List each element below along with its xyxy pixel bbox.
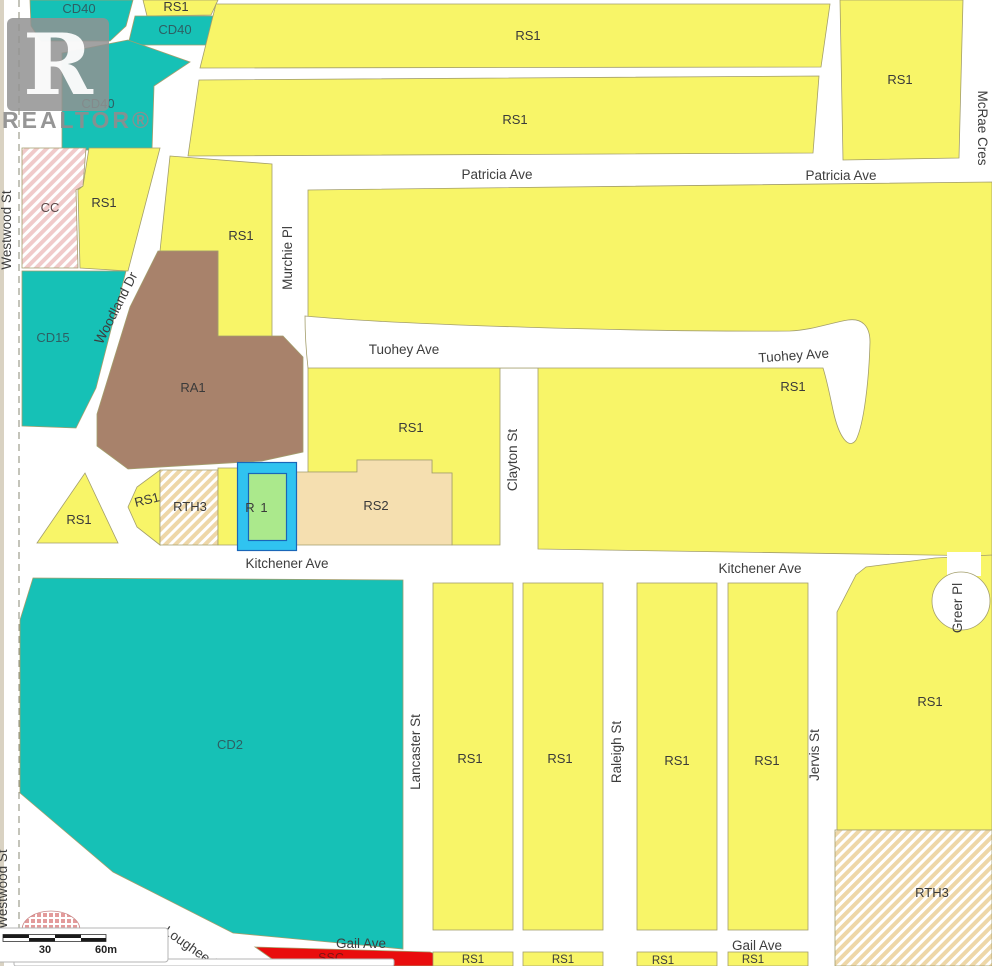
zone-label-cd15: CD15: [36, 330, 69, 345]
zone-label-rs1-stub3: RS1: [652, 955, 674, 966]
zoning-map-canvas: CD40 RS1 CD40 CD40 CC RS1 RS1 CD15 RA1 R…: [0, 0, 992, 966]
zone-label-rs1-col3: RS1: [664, 753, 689, 768]
zoning-map: CD40 RS1 CD40 CD40 CC RS1 RS1 CD15 RA1 R…: [0, 0, 992, 966]
street-label-lancaster-st: Lancaster St: [408, 714, 423, 790]
zone-label-rs1-mid: RS1: [398, 420, 423, 435]
street-label-kitchener-ave-w: Kitchener Ave: [245, 556, 328, 571]
zone-label-rs1-woodland: RS1: [228, 228, 253, 243]
street-label-patricia-ave-w: Patricia Ave: [461, 167, 532, 182]
scale-bar-seg: [29, 938, 55, 942]
zone-label-rth3-west: RTH3: [173, 499, 207, 514]
street-label-mcrae-cres: McRae Cres: [975, 90, 990, 165]
scale-bar-box: [0, 928, 168, 962]
zone-label-rs1-col4: RS1: [754, 753, 779, 768]
scale-bar-seg: [81, 938, 106, 942]
zone-label-rs1-stub4: RS1: [742, 954, 764, 966]
scale-bar: 30 60m: [0, 928, 168, 962]
zone-label-cd40-main: CD40: [81, 96, 114, 111]
scale-bar-max-label: 60m: [95, 944, 117, 956]
scale-bar-seg: [3, 935, 29, 939]
zone-label-rs1-strip1: RS1: [515, 28, 540, 43]
street-label-kitchener-ave-e: Kitchener Ave: [718, 561, 801, 576]
zone-label-cd2: CD2: [217, 737, 243, 752]
zone-label-rth3-southeast: RTH3: [915, 885, 949, 900]
street-label-jervis-st: Jervis St: [807, 729, 822, 781]
street-label-westwood-st-south: Westwood St: [0, 849, 10, 929]
zone-label-rs1-col2: RS1: [547, 751, 572, 766]
zone-label-rt1-1: 1: [260, 500, 267, 515]
zone-label-rs1-southeast: RS1: [917, 694, 942, 709]
zone-rs1-triangle: [37, 473, 118, 543]
zone-rs1-stub4: [728, 952, 808, 966]
zone-label-rs1-col1: RS1: [457, 751, 482, 766]
street-label-greer-pl: Greer Pl: [950, 583, 965, 633]
zone-label-cd40-north-small: CD40: [158, 22, 191, 37]
scale-bar-mid-label: 30: [39, 944, 51, 956]
zone-label-ra1: RA1: [180, 380, 205, 395]
street-label-patricia-ave-e: Patricia Ave: [805, 168, 876, 183]
zone-label-rs2: RS2: [363, 498, 388, 513]
street-label-clayton-st: Clayton St: [505, 429, 520, 492]
zone-label-rs1-stub1: RS1: [462, 954, 484, 966]
street-label-westwood-st: Westwood St: [0, 190, 14, 270]
zone-dome-hatched: [22, 911, 80, 930]
street-label-gail-ave-w: Gail Ave: [336, 936, 386, 951]
zone-label-cd40-north: CD40: [62, 1, 95, 16]
zone-rs1-west: [78, 148, 160, 271]
zone-label-rs1-east: RS1: [780, 379, 805, 394]
zone-label-cc: CC: [41, 200, 60, 215]
zone-label-rs1-northeast: RS1: [887, 72, 912, 87]
zone-label-rs1-strip2: RS1: [502, 112, 527, 127]
zone-label-rt1-r: R: [245, 500, 254, 515]
street-label-murchie-pl: Murchie Pl: [280, 226, 295, 290]
zone-cd2: [20, 578, 403, 949]
street-label-raleigh-st: Raleigh St: [609, 721, 624, 784]
zone-cd40-main: [62, 40, 190, 150]
map-edge-strip: [0, 0, 4, 966]
street-label-gail-ave-e: Gail Ave: [732, 938, 782, 953]
zone-label-rs1-north-small: RS1: [163, 0, 188, 14]
zone-label-rs1-triangle: RS1: [66, 512, 91, 527]
scale-bar-seg: [55, 935, 81, 939]
street-label-tuohey-ave-w: Tuohey Ave: [369, 342, 440, 357]
zone-label-rs1-stub2: RS1: [552, 954, 574, 966]
zone-rs1-stub3: [637, 952, 717, 966]
zone-label-rs1-west: RS1: [91, 195, 116, 210]
zone-rth3-southeast: [835, 830, 992, 966]
